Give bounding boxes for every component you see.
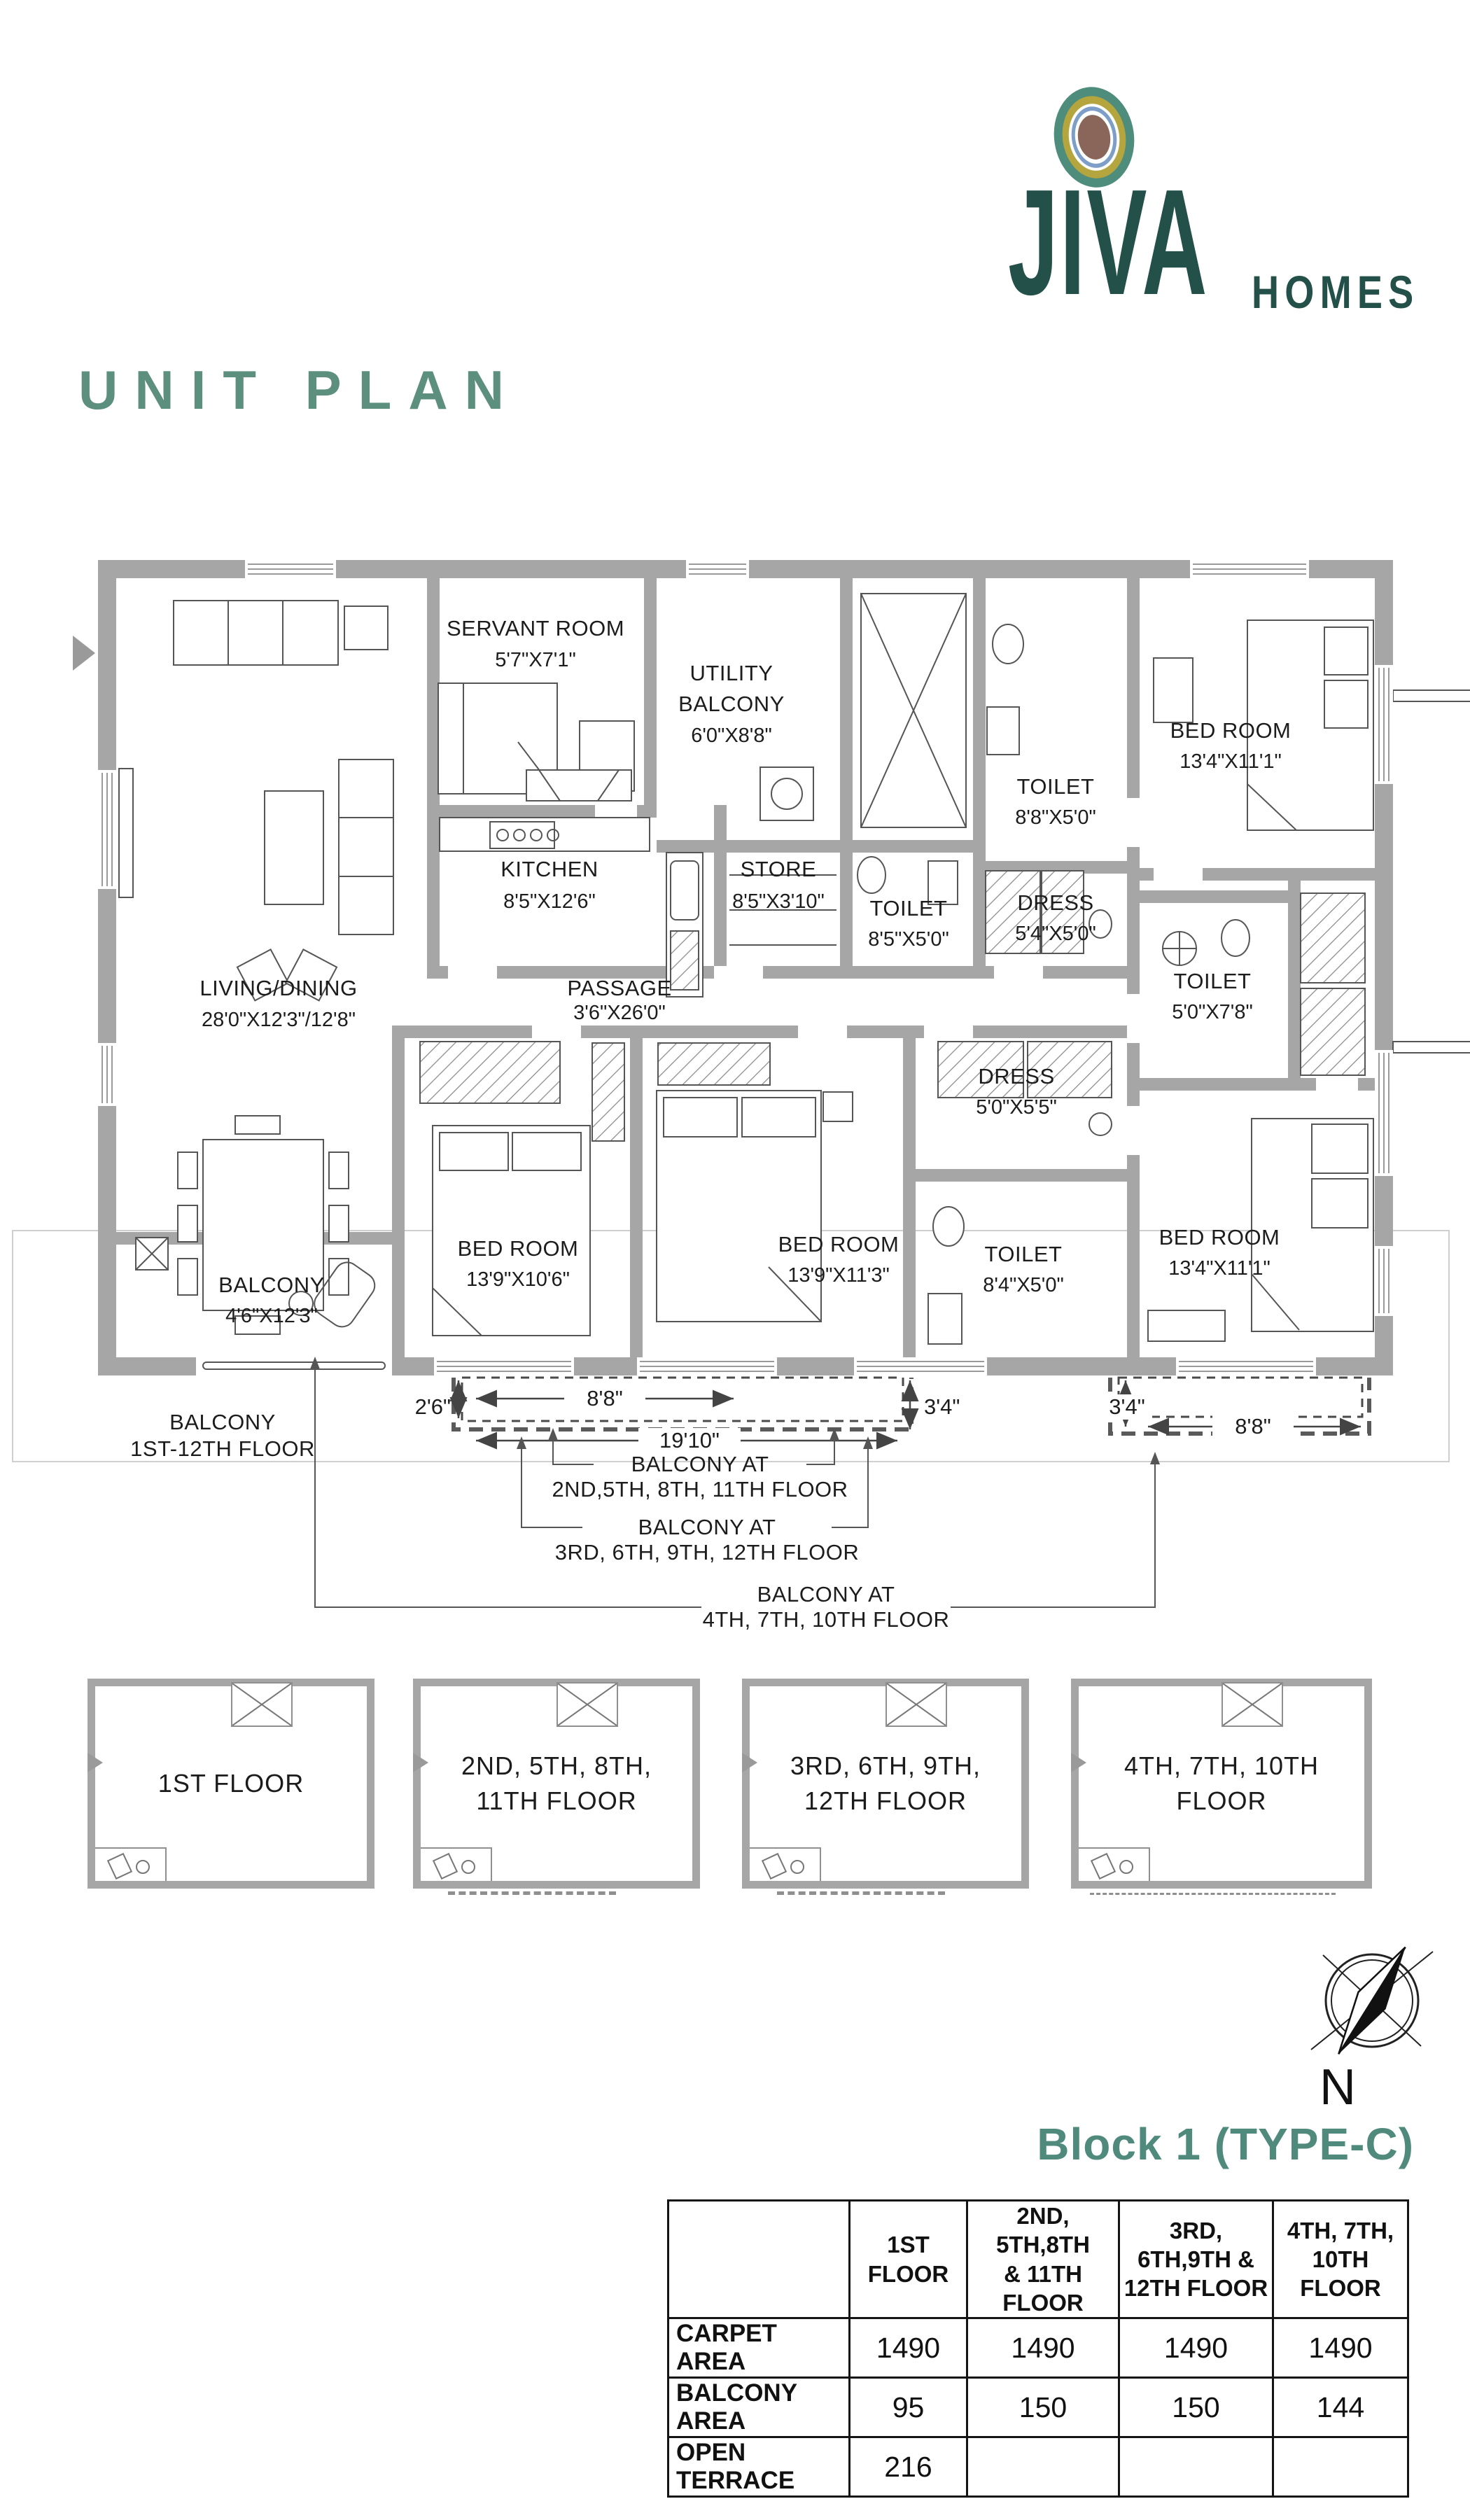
room-dims: 8'5"X5'0": [868, 928, 949, 951]
room-dims: 8'4"X5'0": [983, 1274, 1064, 1296]
cell: [967, 2437, 1119, 2497]
table-row: OPEN TERRACE 216: [668, 2437, 1408, 2497]
room-dims: 13'9"X10'6": [466, 1268, 570, 1291]
dim-left-width: 8'8": [587, 1386, 622, 1410]
room-dims: 13'4"X11'1": [1168, 1257, 1270, 1280]
annotation: 1ST-12TH FLOOR: [130, 1436, 315, 1461]
annotation: BALCONY AT: [631, 1452, 769, 1476]
dim-total-width: 19'10": [659, 1428, 720, 1452]
annotation: 2ND,5TH, 8TH, 11TH FLOOR: [552, 1477, 848, 1501]
thumbnail-4-7-10: 4TH, 7TH, 10TH FLOOR: [1071, 1679, 1372, 1889]
cell: 1490: [1119, 2318, 1273, 2378]
dim-mid-depth: 3'4": [924, 1394, 960, 1419]
annotation: 3RD, 6TH, 9TH, 12TH FLOOR: [555, 1540, 860, 1564]
room-label: BED ROOM: [1159, 1225, 1280, 1249]
room-dims: 28'0"X12'3"/12'8": [202, 1009, 356, 1031]
room-label: DRESS: [1017, 890, 1093, 915]
col-header: 4TH, 7TH, 10TH FLOOR: [1273, 2201, 1408, 2318]
room-dims: 5'0"X7'8": [1172, 1001, 1253, 1023]
cell: 1490: [967, 2318, 1119, 2378]
brand-logo: JIVA HOMES: [1008, 62, 1470, 314]
room-dims: 5'4"X5'0": [1015, 923, 1096, 945]
balcony-dash: [1090, 1893, 1336, 1895]
plan-walls: SERVANT ROOM 5'7"X7'1" UTILITY BALCONY 6…: [73, 560, 1470, 1375]
cell: 1490: [1273, 2318, 1408, 2378]
annotation: BALCONY AT: [638, 1515, 776, 1539]
room-label: PASSAGE: [567, 976, 671, 1000]
dimension-lines: 2'6" 8'8" 19'10" 3'4" 3'4" 8'8": [415, 1380, 1361, 1453]
compass-icon: N: [1291, 1931, 1452, 2113]
room-dims: 8'5"X12'6": [503, 890, 596, 913]
brand-suffix: HOMES: [1252, 269, 1419, 315]
table-row: CARPET AREA 1490 1490 1490 1490: [668, 2318, 1408, 2378]
room-label: BED ROOM: [1170, 718, 1291, 743]
balcony-dash: [448, 1891, 617, 1895]
room-label: BALCONY: [218, 1273, 325, 1297]
thumb-label-2: 12TH FLOOR: [804, 1784, 967, 1819]
cell: [1119, 2437, 1273, 2497]
cell: 150: [967, 2378, 1119, 2437]
room-label: DRESS: [978, 1064, 1054, 1088]
dim-left-height: 2'6": [415, 1394, 451, 1419]
cell: 1490: [850, 2318, 967, 2378]
thumb-label: 3RD, 6TH, 9TH,: [790, 1749, 981, 1784]
annotation: BALCONY AT: [757, 1582, 895, 1606]
thumb-label: 2ND, 5TH, 8TH,: [461, 1749, 652, 1784]
room-dims: 8'8"X5'0": [1015, 806, 1096, 829]
page-title: UNIT PLAN: [78, 358, 521, 422]
col-header: 2ND, 5TH,8TH & 11TH FLOOR: [967, 2201, 1119, 2318]
thumbnail-2-5-8-11: 2ND, 5TH, 8TH,11TH FLOOR: [413, 1679, 700, 1889]
room-dims: 5'7"X7'1": [495, 649, 576, 671]
annotation: 4TH, 7TH, 10TH FLOOR: [703, 1607, 950, 1632]
thumb-label: 4TH, 7TH, 10TH FLOOR: [1079, 1749, 1364, 1819]
col-header: 3RD, 6TH,9TH & 12TH FLOOR: [1119, 2201, 1273, 2318]
annotation: BALCONY: [169, 1410, 276, 1434]
cell: 144: [1273, 2378, 1408, 2437]
col-header: 1ST FLOOR: [850, 2201, 967, 2318]
room-label: TOILET: [985, 1242, 1063, 1266]
cell: 150: [1119, 2378, 1273, 2437]
room-label: TOILET: [1174, 969, 1252, 993]
room-label: BED ROOM: [778, 1232, 899, 1256]
unit-floor-plan: SERVANT ROOM 5'7"X7'1" UTILITY BALCONY 6…: [0, 546, 1470, 1645]
block-heading: Block 1 (TYPE-C): [1015, 2118, 1414, 2170]
room-dims: 3'6"X26'0": [573, 1002, 666, 1024]
room-label: TOILET: [870, 896, 948, 920]
room-label: TOILET: [1017, 774, 1095, 799]
room-label: BALCONY: [678, 692, 785, 716]
area-table: 1ST FLOOR 2ND, 5TH,8TH & 11TH FLOOR 3RD,…: [667, 2199, 1409, 2498]
room-label: STORE: [741, 857, 817, 881]
room-label: KITCHEN: [500, 857, 598, 881]
balcony-dash: [777, 1891, 946, 1895]
table-row: BALCONY AREA 95 150 150 144: [668, 2378, 1408, 2437]
thumb-label-2: 11TH FLOOR: [476, 1784, 636, 1819]
dim-right-width: 8'8": [1235, 1414, 1270, 1438]
dim-right-depth: 3'4": [1109, 1394, 1144, 1419]
cell: 95: [850, 2378, 967, 2437]
room-label: UTILITY: [690, 661, 773, 685]
room-dims: 13'9"X11'3": [787, 1264, 890, 1287]
room-label: SERVANT ROOM: [447, 616, 624, 640]
thumbnail-3-6-9-12: 3RD, 6TH, 9TH,12TH FLOOR: [742, 1679, 1029, 1889]
room-dims: 6'0"X8'8": [691, 724, 772, 747]
brand-name: JIVA: [1008, 167, 1209, 317]
room-dims: 5'0"X5'5": [976, 1096, 1057, 1119]
row-label: OPEN TERRACE: [668, 2437, 850, 2497]
row-label: CARPET AREA: [668, 2318, 850, 2378]
cell: 216: [850, 2437, 967, 2497]
table-header-row: 1ST FLOOR 2ND, 5TH,8TH & 11TH FLOOR 3RD,…: [668, 2201, 1408, 2318]
room-dims: 13'4"X11'1": [1179, 750, 1282, 773]
entry-arrow-icon: [73, 636, 95, 671]
lift-shaft: [861, 594, 966, 827]
room-dims: 4'6"X12'3": [225, 1305, 318, 1327]
cell: [1273, 2437, 1408, 2497]
thumb-label: 1ST FLOOR: [158, 1766, 304, 1801]
table-corner: [668, 2201, 850, 2318]
room-dims: 8'5"X3'10": [732, 890, 825, 913]
room-label: BED ROOM: [458, 1236, 579, 1261]
row-label: BALCONY AREA: [668, 2378, 850, 2437]
thumbnail-1st-floor: 1ST FLOOR: [87, 1679, 374, 1889]
compass-north-label: N: [1319, 2059, 1356, 2113]
room-label: LIVING/DINING: [199, 976, 357, 1000]
